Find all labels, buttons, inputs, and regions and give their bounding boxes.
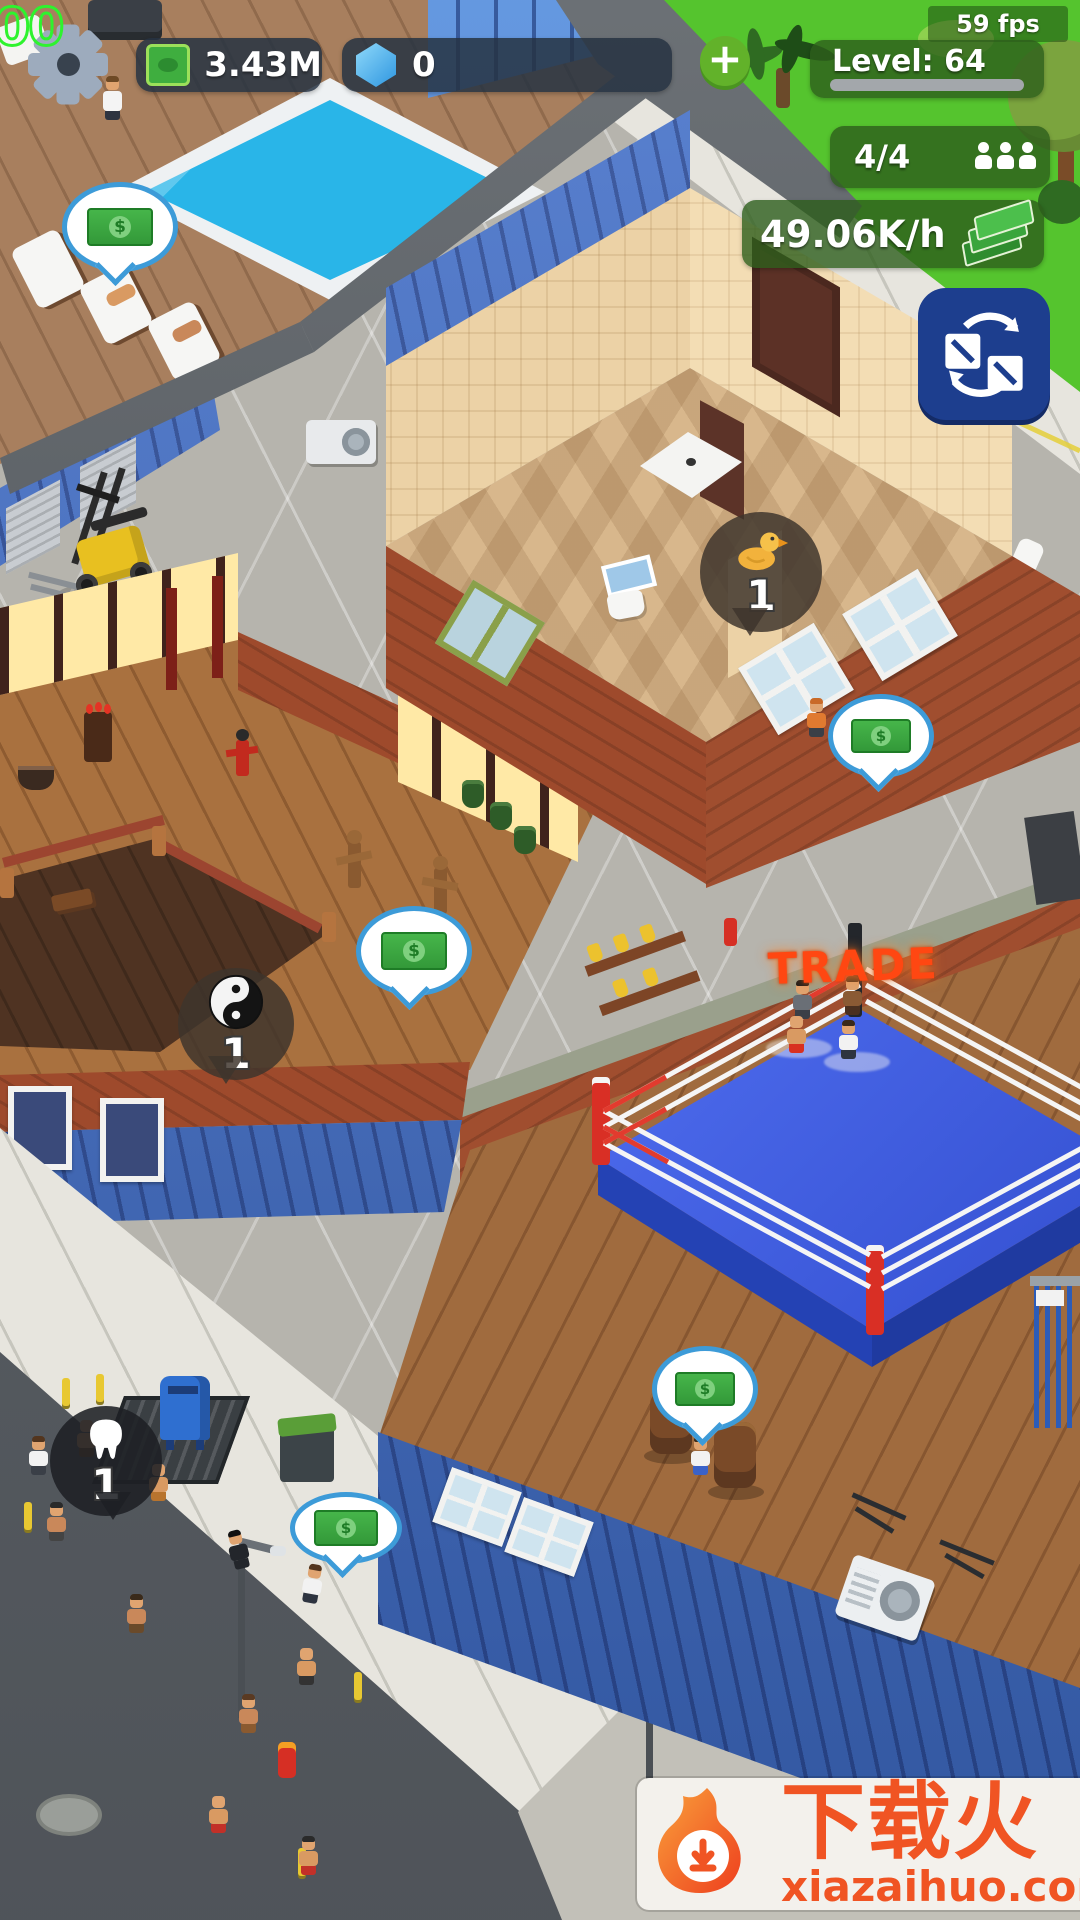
money-counter: 3.43M — [136, 38, 322, 92]
training-dummy — [348, 842, 361, 888]
manhole — [36, 1794, 102, 1836]
fighter — [786, 1016, 806, 1053]
bollard — [24, 1502, 32, 1530]
dumpster — [280, 1424, 334, 1482]
fps-counter: 59 fps — [928, 6, 1068, 42]
person — [46, 1504, 66, 1541]
workers-badge[interactable]: 4/4 — [830, 126, 1050, 188]
punching-bag — [714, 1422, 756, 1488]
candle-stand — [84, 712, 112, 762]
yinyang-bubble[interactable]: 1 — [178, 968, 294, 1080]
workers-count: 4/4 — [854, 138, 910, 176]
watermark-url: xiazaihuo.com — [781, 1866, 1080, 1908]
watermark-title: 下载火 — [781, 1780, 1080, 1864]
watermark-banner[interactable]: 下载火 xiazaihuo.com — [637, 1778, 1080, 1910]
duck-icon — [733, 527, 789, 573]
add-gems-button[interactable]: + — [700, 36, 750, 86]
gem-counter: 0 — [342, 38, 672, 92]
vase — [462, 780, 484, 808]
money-bill-icon: $ — [381, 932, 447, 970]
money-bubble[interactable]: $ — [828, 694, 934, 778]
trade-label: TRADE — [767, 939, 939, 995]
person — [126, 1596, 146, 1633]
money-bubble[interactable]: $ — [290, 1492, 402, 1564]
swap-building-button[interactable] — [918, 288, 1050, 420]
gem-value: 0 — [412, 45, 436, 85]
dojo-red-post — [212, 576, 223, 678]
duck-bubble[interactable]: 1 — [700, 512, 822, 632]
training-dummy — [434, 868, 447, 914]
street-lamp — [228, 1548, 288, 1728]
vase — [490, 802, 512, 830]
person — [238, 1696, 258, 1733]
incense-bowl — [18, 766, 54, 790]
fighter — [838, 1022, 858, 1059]
person — [208, 1796, 228, 1833]
money-bill-icon: $ — [314, 1510, 378, 1546]
fence-gate — [1030, 1276, 1080, 1432]
income-badge: 49.06K/h — [742, 200, 1044, 268]
folding-chair — [846, 1494, 916, 1546]
cash-stack-icon — [956, 206, 1036, 262]
swap-icon — [938, 308, 1030, 400]
money-bubble[interactable]: $ — [356, 906, 472, 996]
workers-icon — [970, 142, 1036, 173]
cash-icon — [146, 44, 190, 86]
folding-chair — [934, 1540, 1004, 1592]
income-rate: 49.06K/h — [760, 213, 946, 256]
vase — [514, 826, 536, 854]
red-dummy — [236, 740, 249, 776]
ac-unit-roof — [306, 420, 376, 464]
window-white — [100, 1098, 164, 1182]
bush — [1038, 180, 1080, 224]
money-bill-icon: $ — [851, 719, 911, 753]
mat-post — [322, 912, 336, 942]
mat-post — [0, 868, 14, 898]
level-badge: Level: 64 — [810, 40, 1044, 98]
gem-icon — [356, 43, 396, 87]
money-bubble[interactable]: $ — [652, 1346, 758, 1432]
bollard — [62, 1378, 70, 1406]
tooth-icon — [79, 1416, 133, 1462]
shower-drain — [686, 458, 696, 466]
dojo-red-post — [166, 588, 177, 690]
person — [298, 1838, 318, 1875]
red-canister — [278, 1742, 296, 1778]
person — [28, 1438, 48, 1475]
money-bill-icon: $ — [675, 1372, 735, 1406]
flame-logo — [645, 1784, 765, 1904]
money-value: 3.43M — [204, 45, 322, 85]
level-label: Level: 64 — [832, 44, 1044, 79]
mat-post — [152, 826, 166, 856]
money-bubble[interactable]: $ — [62, 182, 178, 272]
level-progress-bar — [830, 79, 1024, 91]
person — [806, 700, 826, 737]
debug-counter: 00 — [0, 0, 62, 58]
mailbox — [160, 1376, 210, 1440]
bollard — [96, 1374, 104, 1402]
yinyang-icon — [207, 973, 265, 1031]
tooth-bubble[interactable]: 1 — [50, 1406, 162, 1516]
game-screen: TRADE $ $ $ $ $ 1 — [0, 0, 1080, 1920]
person — [296, 1648, 316, 1685]
bollard — [354, 1672, 362, 1700]
money-bill-icon: $ — [87, 208, 153, 246]
plus-icon: + — [707, 38, 742, 80]
